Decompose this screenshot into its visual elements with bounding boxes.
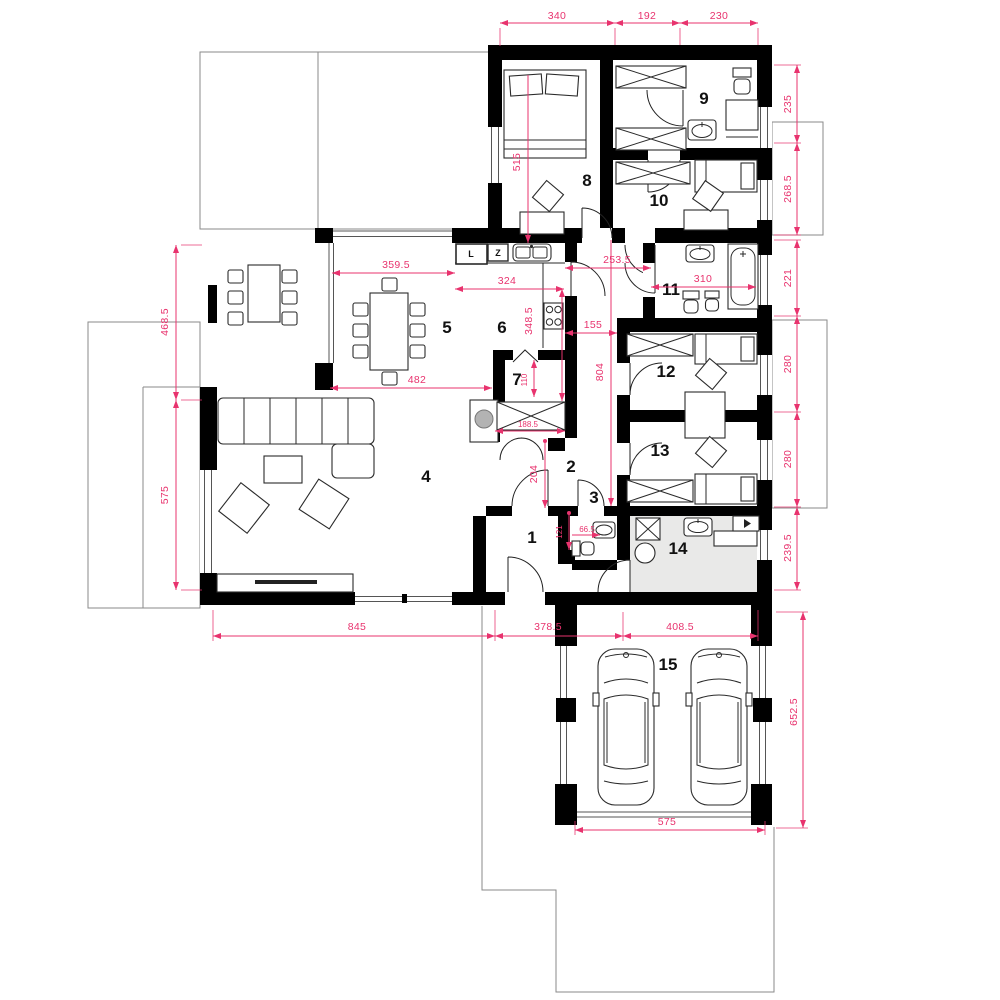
room-label-13: 13 [651, 441, 670, 460]
single-bed [616, 160, 757, 192]
floor-plan-canvas: 1 2 3 4 5 6 7 8 9 10 11 12 13 14 15 L Z … [0, 0, 1000, 1000]
fridge-marker: L [468, 249, 474, 259]
room-label-14: 14 [669, 539, 688, 558]
dim-bottom-408-5: 408.5 [666, 621, 694, 633]
dim-right-235: 235 [782, 95, 794, 113]
dim-top-230: 230 [710, 10, 728, 22]
dim-right-652-5: 652.5 [788, 698, 800, 726]
dim-int-515: 515 [511, 153, 523, 171]
dim-right-268-5: 268.5 [782, 175, 794, 203]
dim-int-204: 204 [528, 465, 540, 483]
freezer-marker: Z [495, 248, 501, 258]
dim-int-155: 155 [584, 319, 602, 331]
desk [520, 212, 564, 234]
kitchen-sink [513, 244, 551, 261]
dim-int-359-5: 359.5 [382, 259, 410, 271]
dim-top-192: 192 [638, 10, 656, 22]
dim-int-804: 804 [594, 363, 606, 381]
dim-int-121: 121 [555, 525, 564, 539]
dim-int-188-5: 188.5 [518, 420, 539, 429]
wardrobe [616, 66, 686, 150]
chair [533, 181, 564, 212]
dim-int-482: 482 [408, 374, 426, 386]
armchair [219, 483, 270, 534]
room-label-8: 8 [582, 171, 591, 190]
dim-bottom-845: 845 [348, 621, 366, 633]
dim-right-280-a: 280 [782, 355, 794, 373]
room-label-3: 3 [589, 488, 598, 507]
desk [684, 210, 728, 230]
room-label-5: 5 [442, 318, 451, 337]
shared-desk [685, 392, 725, 438]
room-label-12: 12 [657, 362, 676, 381]
dim-top-340: 340 [548, 10, 566, 22]
dim-int-310: 310 [694, 273, 712, 285]
dining-table-set [353, 278, 425, 385]
floor-plan: 1 2 3 4 5 6 7 8 9 10 11 12 13 14 15 L Z … [0, 0, 1000, 1000]
double-bed [504, 70, 586, 158]
dim-right-280-b: 280 [782, 450, 794, 468]
coffee-table [264, 456, 302, 483]
dim-left-468-5: 468.5 [159, 308, 171, 336]
dim-int-253-5: 253.5 [603, 254, 631, 266]
dim-bottom-378-5: 378.5 [534, 621, 562, 633]
bedroom-12-furniture [627, 334, 757, 389]
dim-right-239-5: 239.5 [782, 534, 794, 562]
room-label-9: 9 [699, 89, 708, 108]
dim-right-221: 221 [782, 269, 794, 287]
terrace-table-set [228, 265, 297, 325]
room-label-1: 1 [527, 528, 536, 547]
room-label-10: 10 [650, 191, 669, 210]
dim-int-348-5: 348.5 [523, 307, 535, 335]
car-right [686, 649, 752, 805]
dim-int-324: 324 [498, 275, 516, 287]
room-label-11: 11 [662, 280, 680, 299]
stove [544, 303, 563, 329]
room-label-4: 4 [421, 467, 431, 486]
dim-garage-575: 575 [658, 816, 676, 828]
armchair [299, 479, 349, 529]
kitchen-fixtures [455, 244, 565, 348]
dim-int-66-5: 66.5 [579, 525, 595, 534]
room-label-2: 2 [566, 457, 575, 476]
fireplace [470, 400, 498, 442]
room-label-6: 6 [497, 318, 506, 337]
dim-int-110: 110 [520, 373, 529, 386]
dim-left-575: 575 [159, 486, 171, 504]
car-left [593, 649, 659, 805]
room-label-15: 15 [659, 655, 678, 674]
tv-cabinet [217, 574, 353, 592]
